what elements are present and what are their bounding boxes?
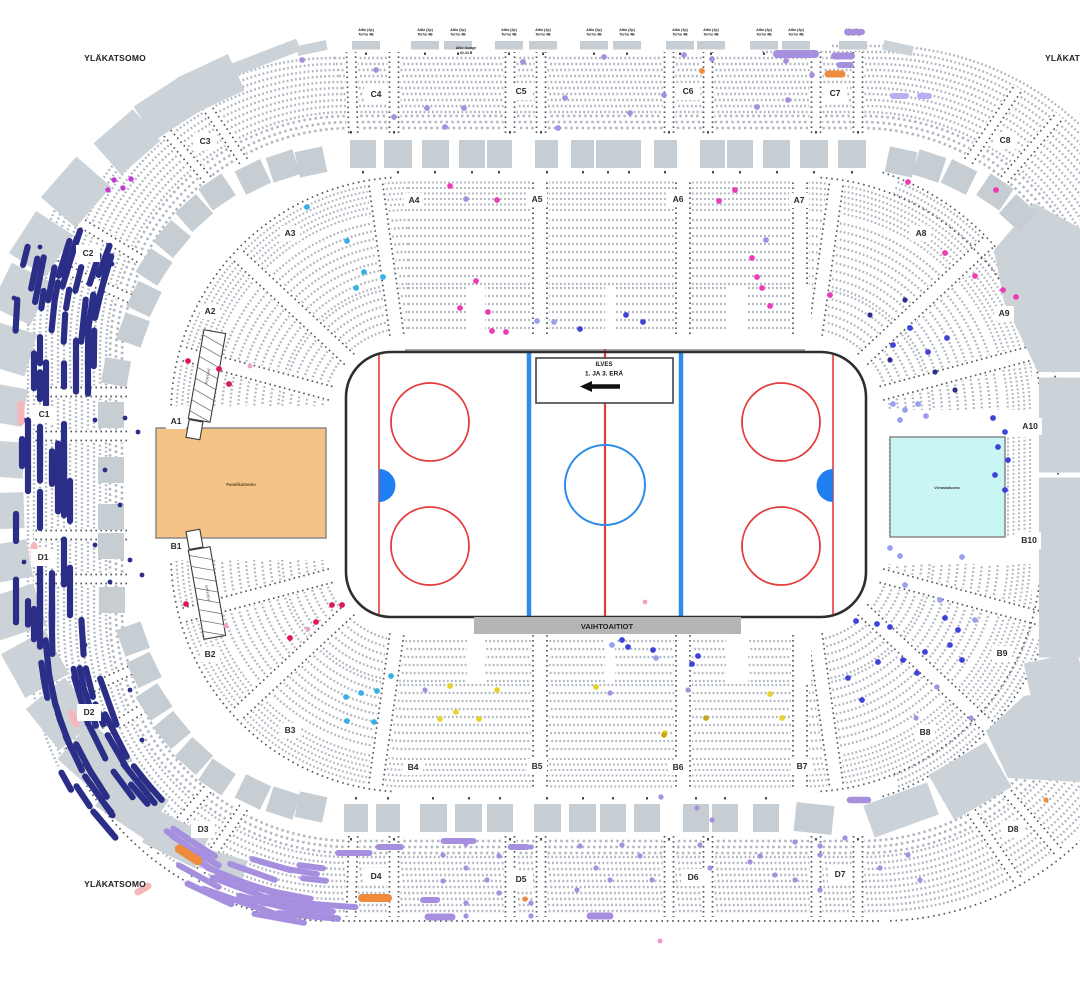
svg-text:YLÄKATSOMO: YLÄKATSOMO (84, 879, 146, 889)
svg-text:A4: A4 (409, 195, 420, 205)
svg-text:Panelikatsomo: Panelikatsomo (226, 482, 256, 487)
svg-text:C1: C1 (39, 409, 50, 419)
svg-text:YLÄKATSOMO: YLÄKATSOMO (1045, 53, 1080, 63)
svg-text:1. JA 3. ERÄ: 1. JA 3. ERÄ (585, 370, 623, 378)
svg-text:B6: B6 (673, 762, 684, 772)
svg-text:Terho 4B: Terho 4B (788, 33, 804, 37)
svg-text:Terho 4B: Terho 4B (586, 33, 602, 37)
svg-text:D2: D2 (84, 707, 95, 717)
svg-text:B3: B3 (285, 725, 296, 735)
svg-text:B4: B4 (408, 762, 419, 772)
svg-text:Aitio (2p): Aitio (2p) (417, 28, 433, 32)
svg-text:C3: C3 (200, 136, 211, 146)
svg-text:A5: A5 (532, 194, 543, 204)
svg-text:B9: B9 (997, 648, 1008, 658)
svg-text:Terho 4B: Terho 4B (756, 33, 772, 37)
svg-text:A8: A8 (916, 228, 927, 238)
svg-text:Vieraskatsomo: Vieraskatsomo (934, 486, 960, 490)
svg-text:Aitio (2p): Aitio (2p) (788, 28, 804, 32)
svg-text:D6: D6 (688, 872, 699, 882)
svg-text:VAIHTOAITIOT: VAIHTOAITIOT (581, 622, 634, 631)
svg-text:B8: B8 (920, 727, 931, 737)
svg-text:B1: B1 (171, 541, 182, 551)
svg-text:Terho 4B: Terho 4B (672, 33, 688, 37)
svg-text:Aitio (2p): Aitio (2p) (358, 28, 374, 32)
svg-text:A10: A10 (1022, 421, 1038, 431)
svg-text:Aitio (2p): Aitio (2p) (586, 28, 602, 32)
svg-text:Terho 4B: Terho 4B (501, 33, 517, 37)
svg-text:Aitio (2p): Aitio (2p) (703, 28, 719, 32)
svg-text:40-44 B: 40-44 B (460, 51, 473, 55)
svg-text:Aitio (2p): Aitio (2p) (535, 28, 551, 32)
svg-text:A6: A6 (673, 194, 684, 204)
svg-text:D8: D8 (1008, 824, 1019, 834)
svg-text:B2: B2 (205, 649, 216, 659)
svg-text:D1: D1 (38, 552, 49, 562)
svg-text:C6: C6 (683, 86, 694, 96)
svg-text:C7: C7 (830, 88, 841, 98)
svg-text:A2: A2 (205, 306, 216, 316)
svg-text:B7: B7 (797, 761, 808, 771)
svg-text:Terho 4B: Terho 4B (417, 33, 433, 37)
svg-text:D7: D7 (835, 869, 846, 879)
svg-text:A7: A7 (794, 195, 805, 205)
svg-text:C8: C8 (1000, 135, 1011, 145)
svg-text:Aitio lounge: Aitio lounge (456, 46, 477, 50)
svg-text:Aitio (2p): Aitio (2p) (501, 28, 517, 32)
svg-text:A9: A9 (999, 308, 1010, 318)
svg-text:Aitio (2p): Aitio (2p) (619, 28, 635, 32)
svg-text:B5: B5 (532, 761, 543, 771)
svg-text:Terho 4B: Terho 4B (450, 33, 466, 37)
svg-text:Aitio (2p): Aitio (2p) (672, 28, 688, 32)
svg-text:Aitio (2p): Aitio (2p) (756, 28, 772, 32)
svg-text:Terho 4B: Terho 4B (619, 33, 635, 37)
svg-text:C2: C2 (83, 248, 94, 258)
svg-text:Terho 4B: Terho 4B (358, 33, 374, 37)
svg-text:C5: C5 (516, 86, 527, 96)
svg-text:Terho 4B: Terho 4B (703, 33, 719, 37)
svg-text:Terho 4B: Terho 4B (535, 33, 551, 37)
svg-text:YLÄKATSOMO: YLÄKATSOMO (84, 53, 146, 63)
svg-text:D5: D5 (516, 874, 527, 884)
svg-text:D4: D4 (371, 871, 382, 881)
svg-text:Aitio (2p): Aitio (2p) (450, 28, 466, 32)
svg-text:D3: D3 (198, 824, 209, 834)
svg-text:ILVES: ILVES (596, 362, 613, 368)
svg-text:A1: A1 (171, 416, 182, 426)
svg-text:C4: C4 (371, 89, 382, 99)
svg-text:A3: A3 (285, 228, 296, 238)
svg-text:B10: B10 (1021, 535, 1037, 545)
